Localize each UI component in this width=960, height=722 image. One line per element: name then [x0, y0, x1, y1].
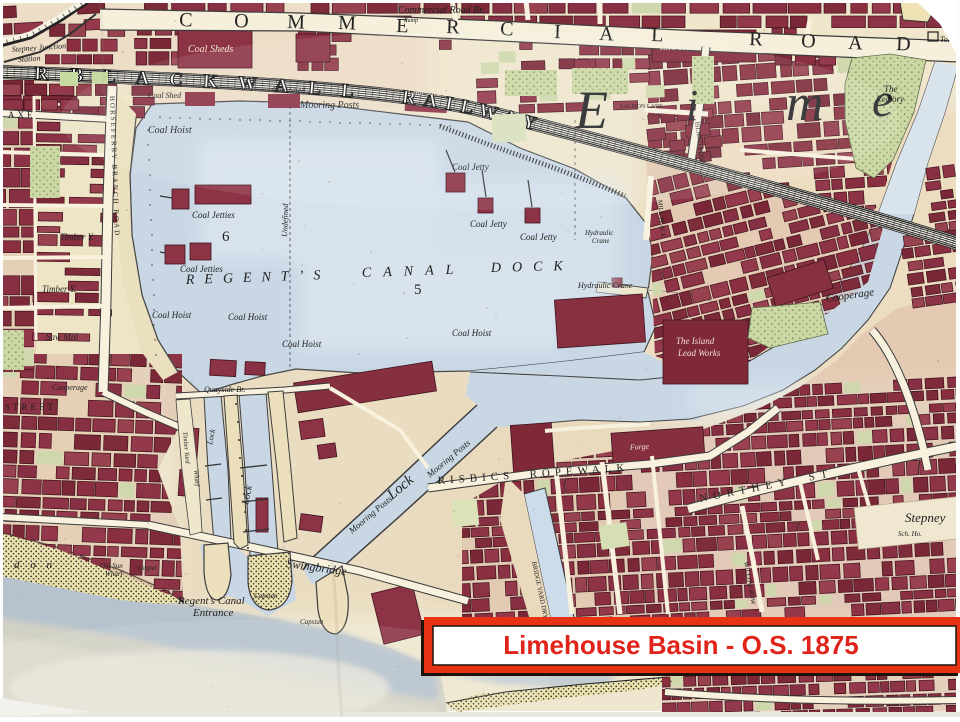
svg-text:M: M — [287, 11, 306, 34]
svg-text:Stepney: Stepney — [905, 510, 946, 525]
svg-text:Undefined: Undefined — [280, 202, 290, 237]
svg-text:M: M — [338, 12, 357, 35]
svg-text:R: R — [34, 63, 49, 85]
svg-text:d o n: d o n — [14, 559, 56, 571]
svg-text:Coal Hoist: Coal Hoist — [452, 328, 492, 338]
svg-text:AXE: AXE — [8, 110, 36, 120]
svg-text:Saw Mill: Saw Mill — [46, 332, 79, 342]
svg-text:Timber Y.: Timber Y. — [60, 232, 94, 242]
svg-text:C: C — [179, 9, 193, 31]
svg-text:A: A — [848, 32, 864, 55]
svg-text:Quayside Br.: Quayside Br. — [204, 385, 245, 394]
svg-text:Coal Hoist: Coal Hoist — [152, 310, 192, 320]
svg-text:Regent’s Canal: Regent’s Canal — [177, 595, 245, 607]
svg-text:Limehouse Basin - O.S. 1875: Limehouse Basin - O.S. 1875 — [503, 630, 858, 660]
svg-text:D: D — [896, 33, 911, 55]
svg-text:Pump: Pump — [403, 18, 418, 24]
svg-text:5: 5 — [414, 282, 422, 298]
svg-text:Coal Hoist: Coal Hoist — [282, 339, 322, 349]
svg-text:STREET: STREET — [5, 402, 56, 412]
svg-text:6: 6 — [222, 229, 230, 245]
svg-text:O: O — [801, 30, 816, 52]
svg-text:Hydraulic: Hydraulic — [584, 229, 614, 237]
svg-text:Crane: Crane — [592, 237, 610, 245]
svg-text:R: R — [749, 28, 764, 50]
svg-text:Commercial Road Br.: Commercial Road Br. — [398, 5, 485, 16]
svg-text:Station: Station — [18, 53, 41, 64]
svg-text:Hydraulic Crane: Hydraulic Crane — [577, 281, 633, 290]
svg-text:chapel: chapel — [138, 564, 157, 572]
svg-text:Coal Jetties: Coal Jetties — [192, 210, 235, 220]
svg-text:DOCK: DOCK — [490, 259, 574, 276]
svg-text:Capstan: Capstan — [254, 592, 278, 600]
svg-text:The: The — [884, 84, 898, 94]
svg-text:Wharf: Wharf — [105, 570, 124, 578]
svg-text:Coal Jetty: Coal Jetty — [520, 232, 557, 242]
svg-text:Old Sun: Old Sun — [100, 562, 123, 570]
svg-text:Forge: Forge — [629, 442, 650, 452]
svg-text:Coal Hoist: Coal Hoist — [228, 312, 268, 322]
svg-text:Lead Works: Lead Works — [677, 348, 721, 358]
svg-text:Timber Y.: Timber Y. — [42, 284, 76, 294]
svg-text:Coal Jetty: Coal Jetty — [470, 219, 507, 229]
svg-text:Cooperage: Cooperage — [52, 383, 88, 392]
svg-text:O: O — [234, 10, 249, 32]
svg-text:Entrance: Entrance — [192, 607, 233, 619]
svg-text:Sch. Ho.: Sch. Ho. — [898, 530, 922, 538]
svg-text:Coal Jetties: Coal Jetties — [180, 264, 223, 274]
svg-text:The Island: The Island — [676, 336, 715, 346]
